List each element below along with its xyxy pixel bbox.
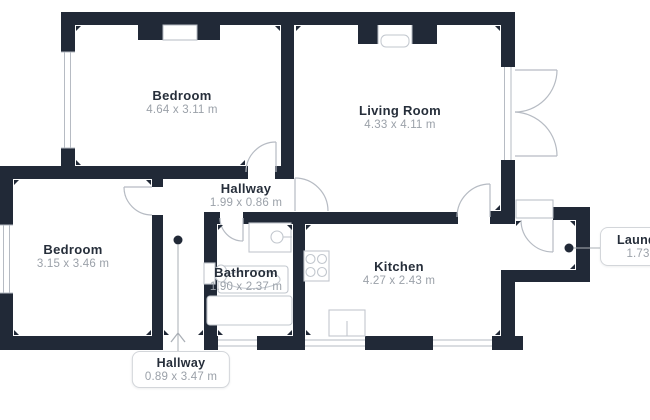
fixtures bbox=[204, 223, 365, 336]
bathroom-sink-icon bbox=[249, 223, 292, 252]
corner-tick bbox=[14, 330, 19, 335]
corner-tick bbox=[570, 221, 575, 226]
corner-tick bbox=[76, 26, 81, 31]
wall-segment bbox=[490, 211, 515, 224]
room-name: Laundry bbox=[617, 233, 650, 247]
window bbox=[218, 336, 257, 350]
window bbox=[0, 225, 13, 293]
corner-tick bbox=[495, 330, 500, 335]
corner-tick bbox=[198, 330, 203, 335]
door-swing bbox=[521, 220, 553, 252]
french-door-frame bbox=[501, 67, 515, 160]
corner-tick bbox=[218, 330, 223, 335]
room-label-hallway-entry: Hallway 0.89 x 3.47 m bbox=[132, 351, 230, 388]
corner-tick bbox=[240, 160, 245, 165]
room-dimensions: 1.73 x bbox=[617, 248, 650, 260]
window bbox=[378, 25, 412, 47]
door-swing bbox=[295, 178, 328, 211]
room-label-laundry: Laundry 1.73 x bbox=[600, 227, 650, 266]
corner-tick bbox=[164, 330, 169, 335]
corner-tick bbox=[14, 180, 19, 185]
room-name: Hallway bbox=[145, 356, 217, 370]
corner-tick bbox=[296, 26, 301, 31]
wall-segment bbox=[293, 212, 305, 350]
wall-segment bbox=[0, 166, 248, 179]
entry-door-frame bbox=[516, 200, 553, 218]
wall-segment bbox=[365, 336, 433, 350]
french-door-swing bbox=[515, 70, 557, 156]
wall-segment bbox=[197, 25, 220, 40]
wall-segment bbox=[0, 166, 13, 225]
wall-segment bbox=[61, 12, 75, 52]
wall-segment bbox=[358, 25, 378, 44]
door-swing bbox=[220, 218, 243, 241]
door-swing bbox=[457, 184, 490, 217]
stove-icon bbox=[304, 251, 329, 281]
leader-dot bbox=[174, 236, 183, 245]
doors bbox=[124, 70, 557, 252]
wall-segment bbox=[204, 336, 218, 350]
leader-dot bbox=[565, 244, 574, 253]
corner-tick bbox=[287, 330, 292, 335]
corner-tick bbox=[516, 221, 521, 226]
corner-tick bbox=[495, 205, 500, 210]
corner-tick bbox=[146, 180, 151, 185]
wall-segment bbox=[412, 25, 437, 44]
corner-tick bbox=[495, 26, 500, 31]
wall-segment bbox=[152, 215, 163, 350]
corner-tick bbox=[275, 26, 280, 31]
floor-plan-drawing bbox=[0, 0, 650, 420]
corner-tick bbox=[306, 225, 311, 230]
door-swing bbox=[246, 142, 276, 172]
toilet-icon bbox=[204, 263, 227, 284]
wall-segment bbox=[492, 336, 523, 350]
corner-tick bbox=[146, 330, 151, 335]
wall-segment bbox=[0, 336, 163, 350]
kitchen-sink-icon bbox=[329, 310, 365, 336]
corner-tick bbox=[76, 160, 81, 165]
corner-tick bbox=[570, 264, 575, 269]
wall-segment bbox=[281, 12, 294, 172]
door-swing bbox=[124, 187, 152, 215]
window bbox=[433, 336, 492, 350]
bathtub-icon bbox=[218, 266, 288, 293]
wall-segment bbox=[138, 25, 163, 40]
window bbox=[305, 336, 365, 350]
wall-segment bbox=[257, 336, 305, 350]
window bbox=[163, 25, 197, 40]
wall-segment bbox=[501, 12, 515, 67]
shower-tray-icon bbox=[207, 296, 292, 325]
floor-plan: Bedroom 4.64 x 3.11 m Living Room 4.33 x… bbox=[0, 0, 650, 420]
radiator-icon bbox=[381, 35, 409, 47]
room-dimensions: 0.89 x 3.47 m bbox=[145, 371, 217, 383]
wall-segment bbox=[275, 166, 294, 179]
wall-segment bbox=[243, 212, 458, 224]
corner-tick bbox=[306, 330, 311, 335]
wall-segment bbox=[152, 179, 163, 187]
window bbox=[61, 52, 75, 148]
